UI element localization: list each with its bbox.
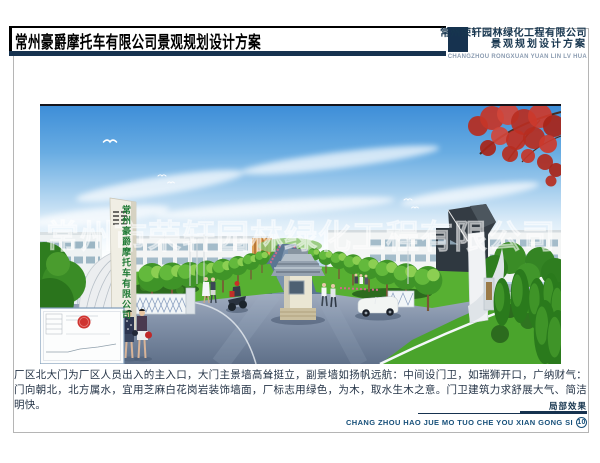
site-plan-inset [40, 308, 124, 364]
title-underline [9, 51, 446, 56]
company-header: 常州荣轩园林绿化工程有限公司 景观规划设计方案 CHANGZHOU RONGXU… [440, 28, 587, 63]
footer-pinyin: CHANG ZHOU HAO JUE MO TUO CHE YOU XIAN G… [346, 417, 587, 428]
company-subtitle: 景观规划设计方案 [440, 39, 587, 50]
footer-rule-accent [520, 411, 587, 414]
white-car [355, 297, 401, 321]
company-pinyin: CHANGZHOU RONGXUAN YUAN LIN LV HUA [440, 52, 587, 63]
page-number-badge: 10 [576, 417, 587, 428]
company-name: 常州荣轩园林绿化工程有限公司 [440, 28, 587, 39]
footer-pinyin-text: CHANG ZHOU HAO JUE MO TUO CHE YOU XIAN G… [346, 418, 573, 427]
presentation-board: 常州豪爵摩托车有限公司景观规划设计方案 常州荣轩园林绿化工程有限公司 景观规划设… [0, 0, 600, 463]
rendering-image: 常州市荣轩园林绿化工程有限公司 常州豪爵摩托车有限公司 [40, 104, 561, 364]
page-title: 常州豪爵摩托车有限公司景观规划设计方案 [15, 28, 261, 53]
design-description: 厂区北大门为厂区人员出入的主入口，大门主景墙高耸挺立，副景墙如扬帆远航：中间设门… [14, 368, 587, 413]
title-bar: 常州豪爵摩托车有限公司景观规划设计方案 [9, 26, 446, 52]
